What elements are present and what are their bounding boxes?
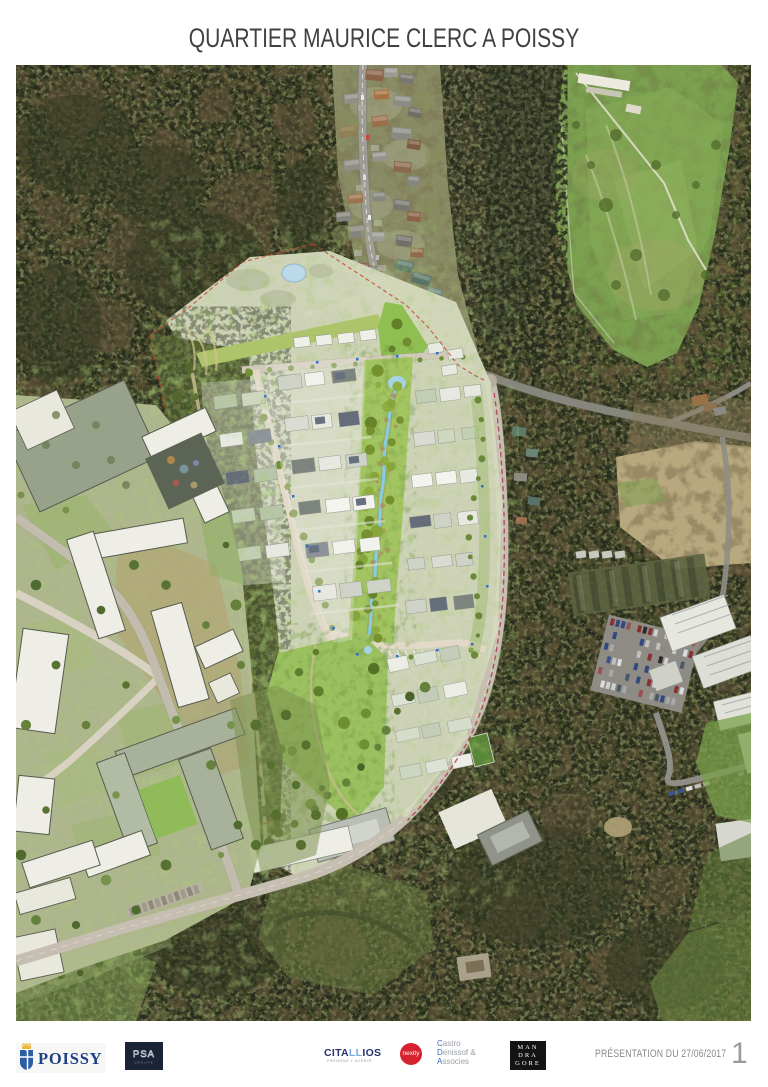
svg-text:PSA: PSA — [133, 1049, 155, 1060]
svg-text:POISSY: POISSY — [38, 1049, 102, 1068]
svg-text:GROUPE: GROUPE — [134, 1061, 154, 1065]
